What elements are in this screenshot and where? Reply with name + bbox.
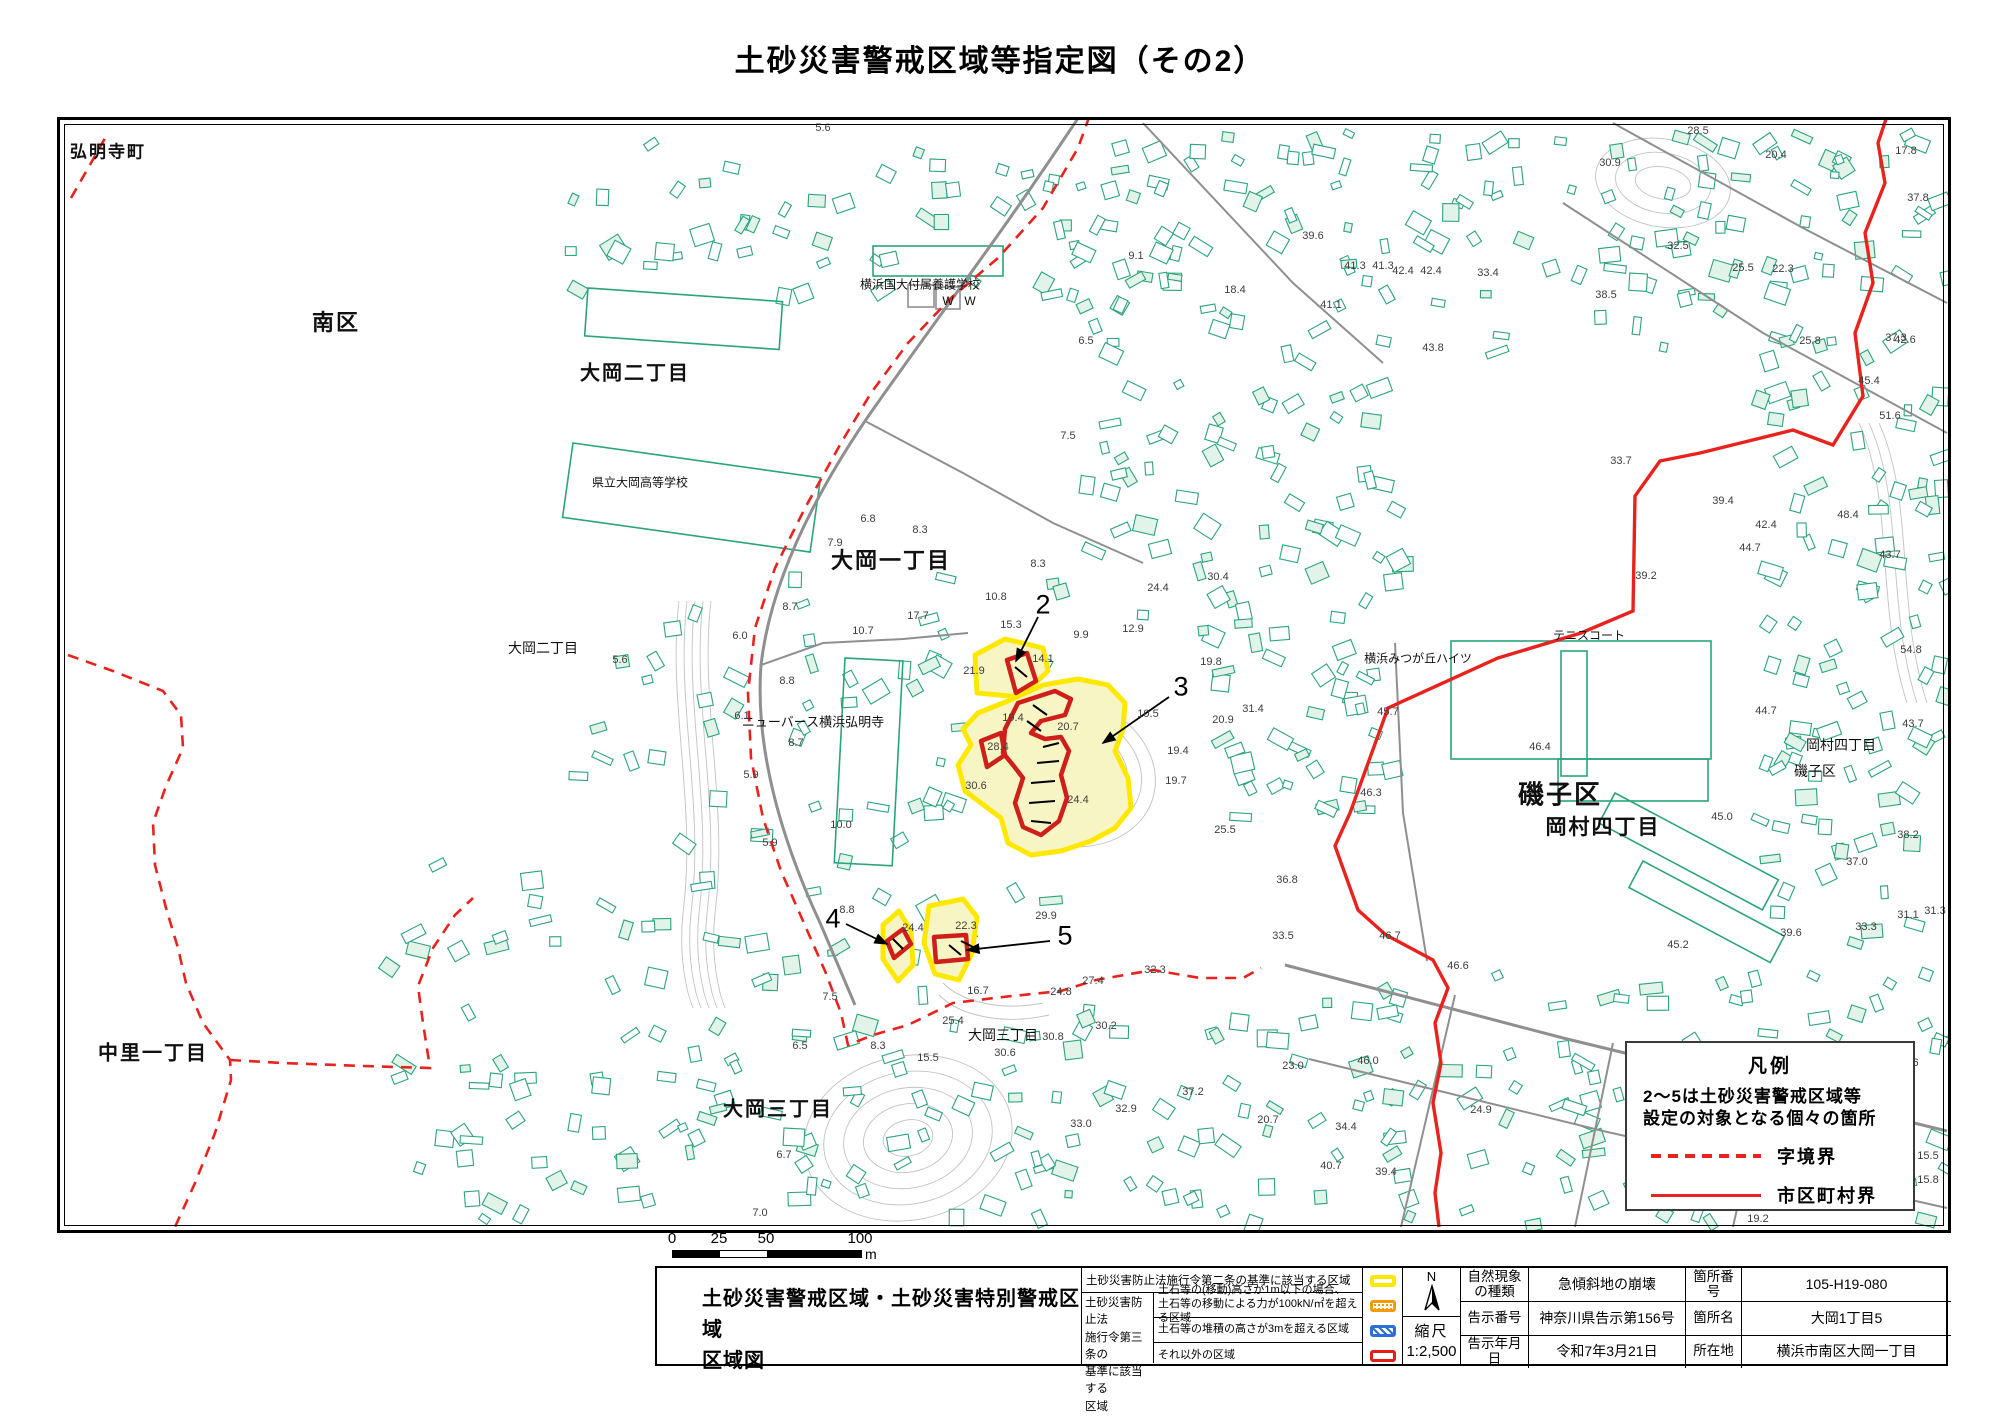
elevation-label: 8.8 [779,675,794,687]
hazard-site-number: 4 [825,904,840,935]
zone-row2-label: 土石等の(移動)高さが1m以下の場合、 土石等の移動による力が100kN/㎡を超… [1154,1293,1362,1318]
solid-line-sample [1651,1194,1761,1197]
elevation-label: 43.7 [1902,718,1923,730]
elevation-label: 42.4 [1420,265,1441,277]
elevation-label: 5.6 [815,122,830,134]
place-label: 弘明寺町 [70,138,146,163]
elevation-label: 45.0 [1711,811,1732,823]
scale-unit-label: m [865,1246,877,1262]
info-value: 神奈川県告示第156号 [1528,1301,1685,1334]
info-label: 箇所番号 [1685,1268,1741,1301]
info-value: 横浜市南区大岡一丁目 [1741,1335,1951,1368]
elevation-label: 46.6 [1447,960,1468,972]
info-value: 令和7年3月21日 [1528,1335,1685,1368]
elevation-label: 22.3 [955,920,976,932]
elevation-label: 44.7 [1739,542,1760,554]
scale-bar-segment [720,1251,767,1257]
zone-group-line: 区域 [1085,1399,1153,1416]
elevation-label: 46.4 [1529,741,1550,753]
elevation-label: 17.7 [907,610,928,622]
elevation-label: 30.6 [994,1047,1015,1059]
elevation-label: 9.9 [1073,629,1088,641]
page: 土砂災害警戒区域等指定図（その2） [0,0,2000,1414]
elevation-label: 48.4 [1837,509,1858,521]
place-label: 岡村四丁目 [1806,735,1876,755]
elevation-label: 45.7 [1377,706,1398,718]
elevation-label: 24.4 [1067,794,1088,806]
elevation-label: 5.9 [762,837,777,849]
north-label: N [1403,1270,1460,1284]
info-value: 大岡1丁目5 [1741,1301,1951,1334]
zone-swatch-column [1362,1268,1403,1364]
elevation-label: 8.7 [788,737,803,749]
elevation-label: 10.8 [985,591,1006,603]
hazard-site-number: 2 [1035,590,1050,621]
elevation-label: 46.3 [1360,787,1381,799]
elevation-label: 25.5 [1732,262,1753,274]
elevation-label: 39.4 [1375,1166,1396,1178]
elevation-label: 41.3 [1344,260,1365,272]
elevation-label: 15.3 [1000,619,1021,631]
elevation-label: 36.8 [1276,874,1297,886]
elevation-label: 41.3 [1372,260,1393,272]
elevation-label: 39.2 [1635,570,1656,582]
info-value: 急傾斜地の崩壊 [1528,1268,1685,1301]
elevation-label: 32.5 [1667,240,1688,252]
legend-box: 凡例 2～5は土砂災害警戒区域等 設定の対象となる個々の箇所 字境界 市区町村界 [1625,1041,1915,1211]
elevation-label: 46.0 [1357,1055,1378,1067]
elevation-label: 28.4 [987,741,1008,753]
elevation-label: 16.7 [967,985,988,997]
info-label: 告示年月日 [1461,1335,1528,1368]
legend-item-label: 市区町村界 [1777,1182,1877,1208]
place-label: 中里一丁目 [98,1037,208,1066]
place-label: 大岡一丁目 [831,543,951,575]
elevation-label: 45.4 [1858,375,1879,387]
elevation-label: 38.5 [1595,289,1616,301]
elevation-label: 9.1 [1128,250,1143,262]
elevation-label: 30.6 [965,780,986,792]
elevation-label: 33.7 [1610,455,1631,467]
swatch-red-zone [1366,1344,1399,1368]
elevation-label: 8.3 [1030,558,1045,570]
north-arrow-cell: N [1403,1268,1460,1317]
elevation-label: 33.4 [1477,267,1498,279]
place-label: 横浜国大付属養護学校 [860,276,980,293]
elevation-label: 24.9 [1470,1104,1491,1116]
elevation-label: 30.2 [1095,1020,1116,1032]
elevation-label: 6.7 [776,1149,791,1161]
place-label: 大岡三丁目 [723,1093,833,1122]
place-label: 県立大岡高等学校 [592,474,688,491]
elevation-label: 12.9 [1122,623,1143,635]
elevation-label: 25.8 [1799,335,1820,347]
swatch-blue-zone [1366,1319,1399,1343]
elevation-label: 31.3 [1924,905,1945,917]
north-arrow-icon [1417,1284,1447,1312]
elevation-label: 38.2 [1897,829,1918,841]
elevation-label: 34.4 [1335,1121,1356,1133]
elevation-label: 20.9 [1212,714,1233,726]
elevation-label: 15.5 [917,1052,938,1064]
notice-info-table: 自然現象の種類 急傾斜地の崩壊 箇所番号 105-H19-080 告示番号 神奈… [1460,1268,1950,1364]
zone-group-line: 施行令第三条の [1085,1330,1153,1365]
elevation-label: 41.1 [1320,299,1341,311]
elevation-label: 33.3 [1855,921,1876,933]
elevation-label: 23.0 [1282,1060,1303,1072]
place-label: 南区 [312,305,360,337]
zone-row3-line: 土石等の堆積の高さが3mを超える区域 [1158,1323,1362,1337]
place-label: 大岡三丁目 [968,1025,1038,1045]
elevation-label: 19.7 [1165,775,1186,787]
elevation-label: 32.9 [1115,1103,1136,1115]
elevation-label: 42.4 [1755,519,1776,531]
elevation-label: 18.4 [1224,284,1245,296]
scale-tick-label: 100 [847,1230,872,1247]
scale-bar-segment [673,1251,720,1257]
place-label: 大岡二丁目 [508,638,578,658]
elevation-label: 20.7 [1057,721,1078,733]
elevation-label: 15.5 [1917,1150,1938,1162]
sheet-title-line1: 土砂災害警戒区域・土砂災害特別警戒区域 [702,1284,1081,1346]
elevation-label: 31.1 [1897,909,1918,921]
elevation-label: 42.6 [1894,334,1915,346]
elevation-label: 32.3 [1144,964,1165,976]
zone-group-line: 土砂災害防止法 [1085,1295,1153,1330]
elevation-label: 24.8 [1050,986,1071,998]
elevation-label: 8.7 [782,601,797,613]
elevation-label: 31.4 [1242,703,1263,715]
elevation-label: 42.4 [1392,265,1413,277]
elevation-label: 19.4 [1002,712,1023,724]
elevation-label: 19.4 [1167,745,1188,757]
elevation-label: 54.8 [1900,644,1921,656]
elevation-label: 43.8 [1422,342,1443,354]
place-label: ニューバース横浜弘明寺 [742,712,884,731]
elevation-label: 30.4 [1207,571,1228,583]
hazard-site-number: 3 [1173,672,1188,703]
elevation-label: 17.8 [1895,145,1916,157]
elevation-label: 30.8 [1042,1031,1063,1043]
hazard-site-number: 5 [1057,921,1072,952]
elevation-label: 28.5 [1687,125,1708,137]
elevation-label: 19.8 [1200,656,1221,668]
info-label: 告示番号 [1461,1301,1528,1334]
place-label: 岡村四丁目 [1546,811,1661,841]
elevation-label: 6.0 [732,630,747,642]
elevation-label: 8.3 [870,1040,885,1052]
info-value: 105-H19-080 [1741,1268,1951,1301]
info-label: 自然現象の種類 [1461,1268,1528,1301]
elevation-label: 40.7 [1320,1160,1341,1172]
elevation-label: 29.9 [1035,910,1056,922]
elevation-label: 20.7 [1257,1114,1278,1126]
elevation-label: 6.5 [1078,335,1093,347]
elevation-label: 7.5 [1060,430,1075,442]
zone-group-label: 土砂災害防止法 施行令第三条の 基準に該当する 区域 [1082,1293,1154,1363]
scale-bar: 0 25 50 100 m [655,1230,915,1264]
elevation-label: 7.5 [822,991,837,1003]
zone-row4-label: それ以外の区域 [1154,1343,1362,1368]
elevation-label: 46.7 [1379,930,1400,942]
swatch-orange-zone [1366,1294,1399,1318]
elevation-label: 8.3 [912,524,927,536]
place-label: 磯子区 [1518,775,1602,812]
swatch-yellow-zone [1366,1269,1399,1293]
elevation-label: 5.9 [743,769,758,781]
elevation-label: 44.7 [1755,705,1776,717]
north-scale-cell: N 縮尺 1:2,500 [1402,1268,1460,1364]
elevation-label: 25.4 [942,1015,963,1027]
footer-table: 土砂災害警戒区域・土砂災害特別警戒区域 区域図 土砂災害防止法施行令第二条の基準… [655,1266,1948,1366]
scale-cell: 縮尺 1:2,500 [1403,1316,1460,1368]
legend-item-city: 市区町村界 [1643,1182,1897,1208]
place-label: W [964,294,975,308]
legend-note-line1: 2～5は土砂災害警戒区域等 [1643,1086,1897,1108]
zone-group-line: 基準に該当する [1085,1364,1153,1399]
elevation-label: 33.0 [1070,1118,1091,1130]
elevation-label: 39.4 [1712,495,1733,507]
elevation-label: 19.2 [1747,1213,1768,1225]
elevation-label: 6.8 [860,513,875,525]
zone-row4-line: それ以外の区域 [1158,1349,1362,1363]
elevation-label: 10.7 [852,625,873,637]
zone-legend-table: 土砂災害防止法施行令第二条の基準に該当する区域 土砂災害防止法 施行令第三条の … [1082,1268,1402,1364]
elevation-label: 15.8 [1917,1174,1938,1186]
zone-row3-label: 土石等の堆積の高さが3mを超える区域 [1154,1318,1362,1343]
sheet-title-cell: 土砂災害警戒区域・土砂災害特別警戒区域 区域図 [657,1268,1082,1364]
elevation-label: 22.3 [1772,263,1793,275]
scale-bar-rule [672,1250,862,1258]
elevation-label: 6.1 [734,710,749,722]
elevation-label: 6.5 [792,1040,807,1052]
elevation-label: 20.4 [1765,149,1786,161]
elevation-label: 45.2 [1667,939,1688,951]
elevation-label: 24.4 [902,922,923,934]
elevation-label: 30.9 [1599,157,1620,169]
legend-item-label: 字境界 [1777,1143,1837,1169]
place-label: 大岡二丁目 [580,357,690,386]
elevation-label: 14.1 [1032,653,1053,665]
elevation-label: 27.4 [1082,975,1103,987]
elevation-label: 43.7 [1879,549,1900,561]
legend-note-line2: 設定の対象となる個々の箇所 [1643,1108,1897,1130]
sheet-title-line2: 区域図 [702,1346,1081,1377]
elevation-label: 37.2 [1182,1086,1203,1098]
scale-value: 1:2,500 [1403,1343,1460,1360]
elevation-label: 5.6 [612,654,627,666]
elevation-label: 39.6 [1302,230,1323,242]
place-label: 磯子区 [1794,761,1836,781]
elevation-label: 24.4 [1147,582,1168,594]
elevation-label: 39.6 [1780,927,1801,939]
elevation-label: 33.5 [1272,930,1293,942]
info-label: 所在地 [1685,1335,1741,1368]
elevation-label: 21.9 [963,665,984,677]
elevation-label: 37.0 [1846,856,1867,868]
legend-title: 凡例 [1643,1051,1897,1078]
page-title: 土砂災害警戒区域等指定図（その2） [0,36,2000,80]
elevation-label: 8.8 [839,904,854,916]
dashed-line-sample [1651,1154,1761,1158]
elevation-label: 7.9 [827,537,842,549]
elevation-label: 10.0 [830,819,851,831]
place-label: W [942,294,953,308]
scale-tick-label: 50 [758,1230,775,1247]
scale-bar-segment [767,1251,861,1257]
place-label: テニスコート [1553,627,1625,644]
place-label: 横浜みつが丘ハイツ [1364,650,1472,667]
legend-item-aza: 字境界 [1643,1143,1897,1169]
scale-tick-label: 25 [711,1230,728,1247]
zone-row2-line1: 土石等の(移動)高さが1m以下の場合、 [1158,1284,1362,1298]
elevation-label: 25.5 [1214,824,1235,836]
elevation-label: 37.8 [1907,192,1928,204]
elevation-label: 7.0 [752,1207,767,1219]
scale-caption: 縮尺 [1403,1320,1460,1341]
map-canvas: 弘明寺町南区大岡二丁目横浜国大付属養護学校県立大岡高等学校大岡一丁目大岡二丁目ニ… [57,117,1951,1233]
scale-tick-label: 0 [668,1230,676,1247]
info-label: 箇所名 [1685,1301,1741,1334]
elevation-label: 10.5 [1137,708,1158,720]
elevation-label: 51.6 [1879,410,1900,422]
